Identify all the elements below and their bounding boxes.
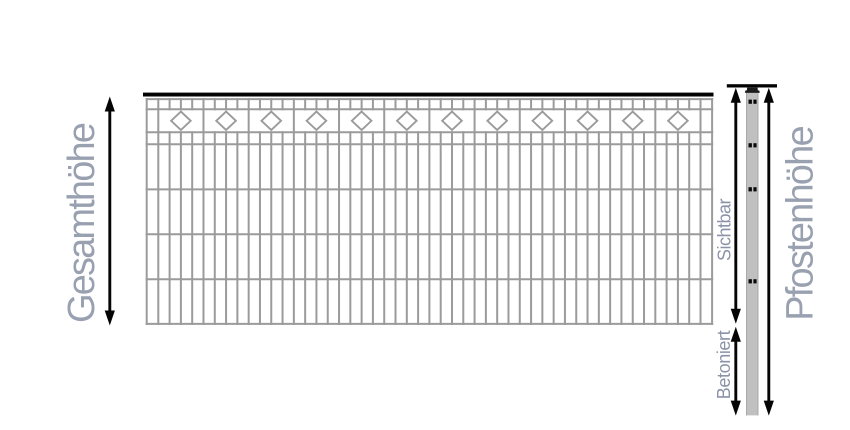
svg-text:Sichtbar: Sichtbar (715, 198, 735, 261)
svg-text:Pfostenhöhe: Pfostenhöhe (780, 127, 822, 321)
svg-text:Gesamthöhe: Gesamthöhe (61, 123, 103, 323)
svg-text:Betoniert: Betoniert (714, 330, 734, 399)
